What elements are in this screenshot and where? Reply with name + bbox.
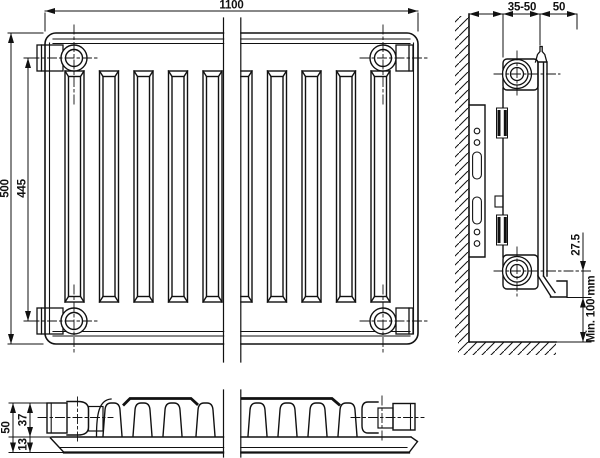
radiator-technical-drawing: 1100 500 445 35-50 50 27.5 Min. 100 mm <box>0 0 600 458</box>
panel-groove <box>65 71 84 302</box>
dim-label-convector-depth: 37 <box>18 414 30 426</box>
convector-fin <box>133 403 152 436</box>
dim-label-depth: 50 <box>553 2 565 14</box>
convector-fin <box>338 403 357 436</box>
dim-label-hub-offset: 27.5 <box>571 233 583 255</box>
bottom-left-fitting <box>47 402 103 436</box>
dim-label-floor-clearance: Min. 100 mm <box>586 276 598 343</box>
panel-groove <box>100 71 119 302</box>
panel-groove <box>169 71 188 302</box>
panel-profile <box>538 62 547 276</box>
convector-fin <box>248 403 267 436</box>
panel-groove <box>337 71 356 302</box>
bottom-plug <box>538 276 567 297</box>
dim-label-wall-gap: 35-50 <box>508 2 536 14</box>
bracket-slot-lower <box>473 197 482 224</box>
bracket-holes <box>473 128 482 246</box>
dim-label-panel-depth: 13 <box>18 438 30 450</box>
panel-groove <box>203 71 222 302</box>
fin-top-plate-left <box>124 399 197 405</box>
bracket-clip-upper <box>497 108 508 138</box>
dim-label-hub-distance: 445 <box>17 178 29 197</box>
panel-groove <box>268 71 287 302</box>
floor-hatching <box>458 342 556 355</box>
side-view <box>455 14 591 355</box>
convector-fin <box>163 403 182 436</box>
dim-label-width: 1100 <box>219 0 243 12</box>
dim-label-total-depth: 50 <box>1 421 13 433</box>
bracket-slot-upper <box>473 152 482 179</box>
panel-groove <box>302 71 321 302</box>
bracket-hook <box>495 196 503 207</box>
wall-hatching <box>455 16 469 342</box>
convector-fin <box>196 403 215 436</box>
convector-fin <box>278 403 297 436</box>
break-lines <box>224 18 241 457</box>
dim-label-height: 500 <box>0 179 12 198</box>
convector-fin <box>308 403 327 436</box>
panel-groove <box>371 71 390 302</box>
panel-groove <box>134 71 153 302</box>
drawing-canvas: 1100 500 445 35-50 50 27.5 Min. 100 mm <box>0 0 600 458</box>
bracket-clip-lower <box>497 215 508 245</box>
convector-fin <box>103 403 122 436</box>
